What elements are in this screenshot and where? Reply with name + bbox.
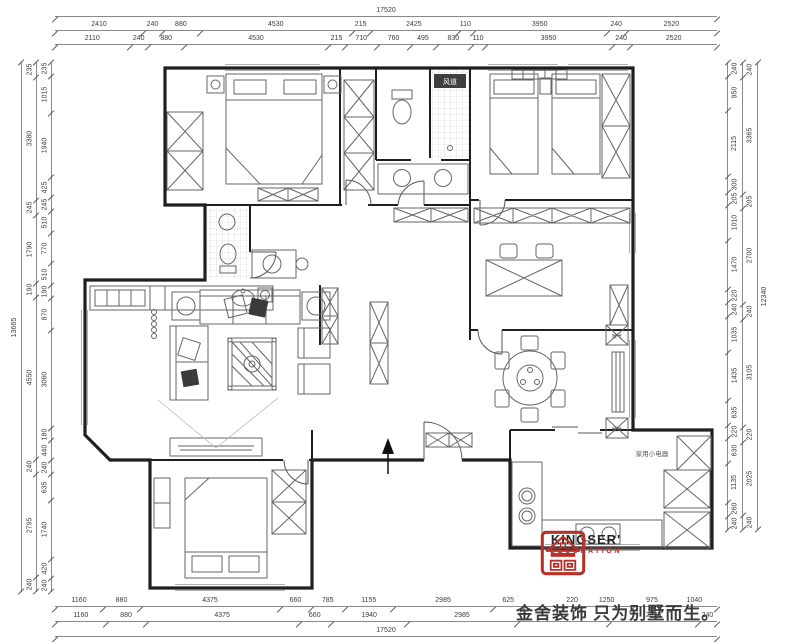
dim-segment: 13665 — [8, 62, 21, 592]
dim-label: 220 — [731, 290, 738, 302]
dim-label: 220 — [746, 429, 753, 441]
dim-segment: 240 — [38, 578, 51, 592]
dim-label: 870 — [41, 308, 48, 320]
dim-label: 240 — [133, 35, 145, 44]
dim-chain-right-coarse: 2403365205270024031052202025240 — [742, 62, 756, 530]
dim-label: 2025 — [746, 471, 753, 487]
dim-label: 240 — [41, 461, 48, 473]
dim-label: 4530 — [268, 21, 284, 30]
dim-label: 1160 — [72, 597, 87, 606]
dim-segment: 760 — [377, 31, 410, 44]
dim-label: 880 — [120, 612, 132, 621]
dim-segment: 660 — [299, 608, 331, 621]
dim-segment: 3950 — [473, 17, 607, 30]
dim-segment: 245 — [38, 197, 51, 211]
dim-label: 625 — [502, 597, 514, 606]
bed-guest-2 — [552, 74, 600, 174]
dim-label: 880 — [116, 597, 128, 606]
dim-chain-top-total: 17520 — [55, 3, 717, 17]
dim-label: 2700 — [746, 248, 753, 264]
dim-segment: 880 — [162, 17, 200, 30]
dim-label: 1155 — [361, 597, 376, 606]
dim-label: 660 — [290, 597, 302, 606]
dim-label: 2115 — [731, 136, 738, 151]
dim-segment: 235 — [38, 62, 51, 76]
dim-label: 1435 — [731, 368, 738, 384]
dim-segment: 2425 — [370, 17, 458, 30]
dim-label: 240 — [26, 579, 33, 591]
dim-label: 240 — [746, 305, 753, 317]
dim-chain-left-total: 13665 — [8, 62, 22, 592]
dim-label: 240 — [615, 35, 627, 44]
dim-segment: 240 — [612, 31, 630, 44]
dim-label: 1740 — [41, 522, 48, 538]
dim-segment: 240 — [143, 17, 162, 30]
bed-master — [226, 74, 322, 184]
dim-segment: 1015 — [38, 76, 51, 113]
dim-segment: 2520 — [630, 31, 717, 44]
dim-label: 240 — [731, 303, 738, 315]
dim-label: 635 — [41, 481, 48, 493]
dim-segment: 235 — [23, 62, 36, 77]
dim-label: 215 — [355, 21, 367, 30]
rug — [228, 338, 276, 390]
dim-segment: 240 — [23, 577, 36, 592]
dim-segment: 240 — [728, 516, 741, 530]
appliances-label: 家用小电器 — [636, 449, 669, 458]
dim-segment: 180 — [38, 428, 51, 440]
dim-chain-right-fine: 2409502115300205101014702202401035143563… — [727, 62, 741, 530]
floor-plan: 风道 暖气 暖气 家用小电器 — [0, 0, 800, 642]
dim-segment: 215 — [352, 17, 370, 30]
wardrobe-bottom — [272, 470, 306, 534]
radiator-label: 暖气 — [612, 426, 622, 433]
dim-label: 880 — [175, 21, 187, 30]
dim-segment: 1435 — [728, 352, 741, 400]
dim-segment: 880 — [106, 608, 145, 621]
dim-segment: 2025 — [743, 442, 756, 515]
tv-cabinet — [170, 438, 262, 456]
dim-label: 240 — [731, 517, 738, 529]
dim-chain-right-total: 12340 — [757, 62, 771, 530]
dim-label: 245 — [41, 198, 48, 210]
dim-label: 1470 — [731, 257, 738, 273]
dim-segment: 240 — [38, 460, 51, 474]
dim-segment: 880 — [103, 593, 140, 606]
dim-segment: 1790 — [23, 215, 36, 283]
dim-label: 13665 — [11, 317, 18, 336]
dim-label: 2520 — [664, 21, 680, 30]
dim-label: 1035 — [731, 326, 738, 342]
dim-segment: 2700 — [743, 208, 756, 304]
dim-segment: 770 — [38, 233, 51, 263]
dim-chain-top-row1: 24102408804530215242511039502402520 — [55, 17, 717, 31]
bed-bottom — [185, 478, 267, 578]
dim-segment: 215 — [328, 31, 346, 44]
dim-segment: 660 — [280, 593, 311, 606]
dim-segment: 1160 — [55, 608, 106, 621]
dim-label: 760 — [388, 35, 400, 44]
dim-label: 950 — [731, 87, 738, 99]
dim-label: 240 — [610, 21, 622, 30]
vent-duct-label: 风道 — [443, 77, 457, 86]
dim-label: 3105 — [746, 365, 753, 381]
dim-segment: 1940 — [38, 113, 51, 177]
dim-label: 205 — [746, 195, 753, 207]
dim-label: 4375 — [202, 597, 218, 606]
dim-label: 240 — [746, 64, 753, 76]
dim-label: 4375 — [214, 612, 230, 621]
dim-segment: 110 — [471, 31, 485, 44]
entry-door-gap — [424, 457, 462, 464]
wardrobe-guest — [602, 74, 630, 178]
dim-label: 190 — [41, 286, 48, 298]
dim-segment: 240 — [130, 31, 148, 44]
dim-segment: 3380 — [23, 77, 36, 200]
dim-label: 240 — [731, 63, 738, 75]
dim-label: 830 — [447, 35, 459, 44]
dim-segment: 635 — [38, 474, 51, 500]
dim-segment: 1740 — [38, 500, 51, 558]
dim-segment: 1155 — [345, 593, 393, 606]
dim-segment: 2520 — [626, 17, 717, 30]
sofa-side — [170, 326, 208, 400]
dim-label: 240 — [41, 579, 48, 591]
dim-segment: 510 — [38, 263, 51, 285]
dim-label: 245 — [26, 201, 33, 213]
dim-label: 110 — [460, 21, 471, 30]
furniture — [90, 70, 711, 578]
shoe-cabinet — [426, 433, 472, 447]
dim-label: 785 — [322, 597, 334, 606]
dim-segment: 1160 — [55, 593, 103, 606]
dim-segment: 2410 — [55, 17, 143, 30]
dim-segment: 510 — [38, 211, 51, 233]
dim-label: 4550 — [26, 370, 33, 386]
floor-plan-sheet: 风道 暖气 暖气 家用小电器 17520 2410240880453021524… — [0, 0, 800, 642]
dim-segment: 3365 — [743, 77, 756, 194]
dim-label: 495 — [417, 35, 429, 44]
dim-segment: 240 — [743, 515, 756, 530]
kingser-logo-emblem — [540, 530, 586, 576]
dim-label: 205 — [731, 193, 738, 205]
dim-segment: 440 — [38, 440, 51, 460]
dim-segment: 245 — [23, 200, 36, 215]
dim-segment: 495 — [410, 31, 436, 44]
dim-label: 2520 — [666, 35, 682, 44]
dim-label: 3950 — [541, 35, 557, 44]
dim-label: 220 — [731, 425, 738, 437]
dim-label: 235 — [26, 64, 33, 76]
dim-label: 180 — [41, 428, 48, 440]
dim-segment: 2795 — [23, 474, 36, 577]
dim-label: 1160 — [73, 612, 88, 621]
vanity-counter — [378, 164, 468, 194]
dim-label: 425 — [41, 181, 48, 193]
dim-segment: 3105 — [743, 319, 756, 428]
dim-label: 235 — [41, 63, 48, 75]
dim-label: 3950 — [532, 21, 548, 30]
outer-walls — [85, 68, 712, 588]
dim-segment: 425 — [38, 177, 51, 197]
dim-segment: 950 — [728, 76, 741, 110]
dim-label: 12340 — [761, 286, 768, 305]
dim-segment: 12340 — [758, 62, 771, 530]
dim-segment: 4550 — [23, 297, 36, 460]
dim-segment: 830 — [436, 31, 471, 44]
dim-segment: 2985 — [393, 593, 494, 606]
closet-column — [344, 80, 374, 190]
dim-label: 2410 — [91, 21, 107, 30]
dim-label: 880 — [160, 35, 172, 44]
dim-label: 630 — [731, 444, 738, 456]
dim-label: 3060 — [41, 371, 48, 387]
dim-chain-bottom-total: 17520 — [55, 623, 717, 637]
dim-segment: 785 — [311, 593, 345, 606]
dim-segment: 880 — [148, 31, 184, 44]
dim-label: 420 — [41, 562, 48, 574]
dim-segment: 4530 — [200, 17, 352, 30]
dim-label: 4530 — [248, 35, 264, 44]
dining-table — [503, 351, 557, 405]
dim-segment: 420 — [38, 559, 51, 578]
dim-label: 710 — [355, 35, 367, 44]
dim-label: 2985 — [435, 597, 451, 606]
dim-label: 190 — [26, 284, 33, 296]
dim-label: 300 — [731, 178, 738, 190]
wardrobe-master — [167, 112, 203, 190]
dim-label: 240 — [147, 21, 159, 30]
dim-label: 440 — [41, 444, 48, 456]
dim-segment: 240 — [23, 459, 36, 474]
dim-label: 1015 — [41, 87, 48, 103]
dim-segment: 710 — [345, 31, 377, 44]
dim-segment: 870 — [38, 298, 51, 331]
dim-label: 215 — [331, 35, 343, 44]
dim-segment: 17520 — [55, 3, 717, 16]
dim-label: 1010 — [731, 215, 738, 231]
desk — [486, 260, 562, 296]
dim-label: 1940 — [361, 612, 377, 621]
dim-label: 510 — [41, 268, 48, 280]
dim-label: 1790 — [26, 241, 33, 257]
dim-segment: 4375 — [146, 608, 299, 621]
dim-label: 2985 — [454, 612, 470, 621]
dim-label: 17520 — [376, 7, 395, 16]
dim-label: 2425 — [406, 21, 422, 30]
dim-segment: 190 — [38, 285, 51, 298]
dim-label: 17520 — [376, 627, 395, 636]
radiator-label: 暖气 — [612, 333, 622, 340]
dim-chain-left-coarse: 2353380245179019045502402795240 — [23, 62, 37, 592]
bed-guest-1 — [490, 74, 538, 174]
dim-label: 510 — [41, 216, 48, 228]
dim-segment: 3060 — [38, 330, 51, 427]
dim-segment: 1135 — [728, 463, 741, 502]
dim-segment: 1940 — [331, 608, 407, 621]
dim-chain-top-row2: 2110240880453021571076049583011039502402… — [55, 31, 717, 45]
dim-segment: 1470 — [728, 240, 741, 289]
toilet — [393, 100, 411, 124]
dim-label: 3365 — [746, 128, 753, 144]
dim-segment: 3950 — [485, 31, 612, 44]
dim-label: 2795 — [26, 518, 33, 534]
north-arrow-icon — [382, 438, 394, 474]
dim-segment: 2110 — [55, 31, 130, 44]
dim-chain-left-fine: 2351015194042524551077051019087030601804… — [38, 62, 52, 592]
dim-label: 1940 — [41, 137, 48, 153]
dim-label: 3380 — [26, 130, 33, 146]
dim-label: 240 — [746, 517, 753, 529]
logo-slogan: 金舍装饰 只为别墅而生。 — [516, 599, 719, 624]
dim-segment: 2115 — [728, 110, 741, 177]
dim-label: 770 — [41, 242, 48, 254]
dim-label: 240 — [26, 461, 33, 473]
dim-segment: 240 — [607, 17, 626, 30]
dim-segment: 2985 — [407, 608, 516, 621]
kingser-logo: KINGSER' DECORATION — [540, 530, 632, 555]
dim-segment: 110 — [458, 17, 472, 30]
dim-label: 1135 — [731, 475, 738, 490]
dim-label: 260 — [731, 503, 738, 515]
dim-segment: 4375 — [140, 593, 280, 606]
dim-label: 660 — [309, 612, 321, 621]
dim-label: 110 — [472, 35, 483, 44]
dim-label: 2110 — [85, 35, 100, 44]
dim-segment: 4530 — [184, 31, 327, 44]
dim-segment: 190 — [23, 283, 36, 297]
dim-label: 635 — [731, 406, 738, 418]
dim-segment: 17520 — [55, 623, 717, 636]
